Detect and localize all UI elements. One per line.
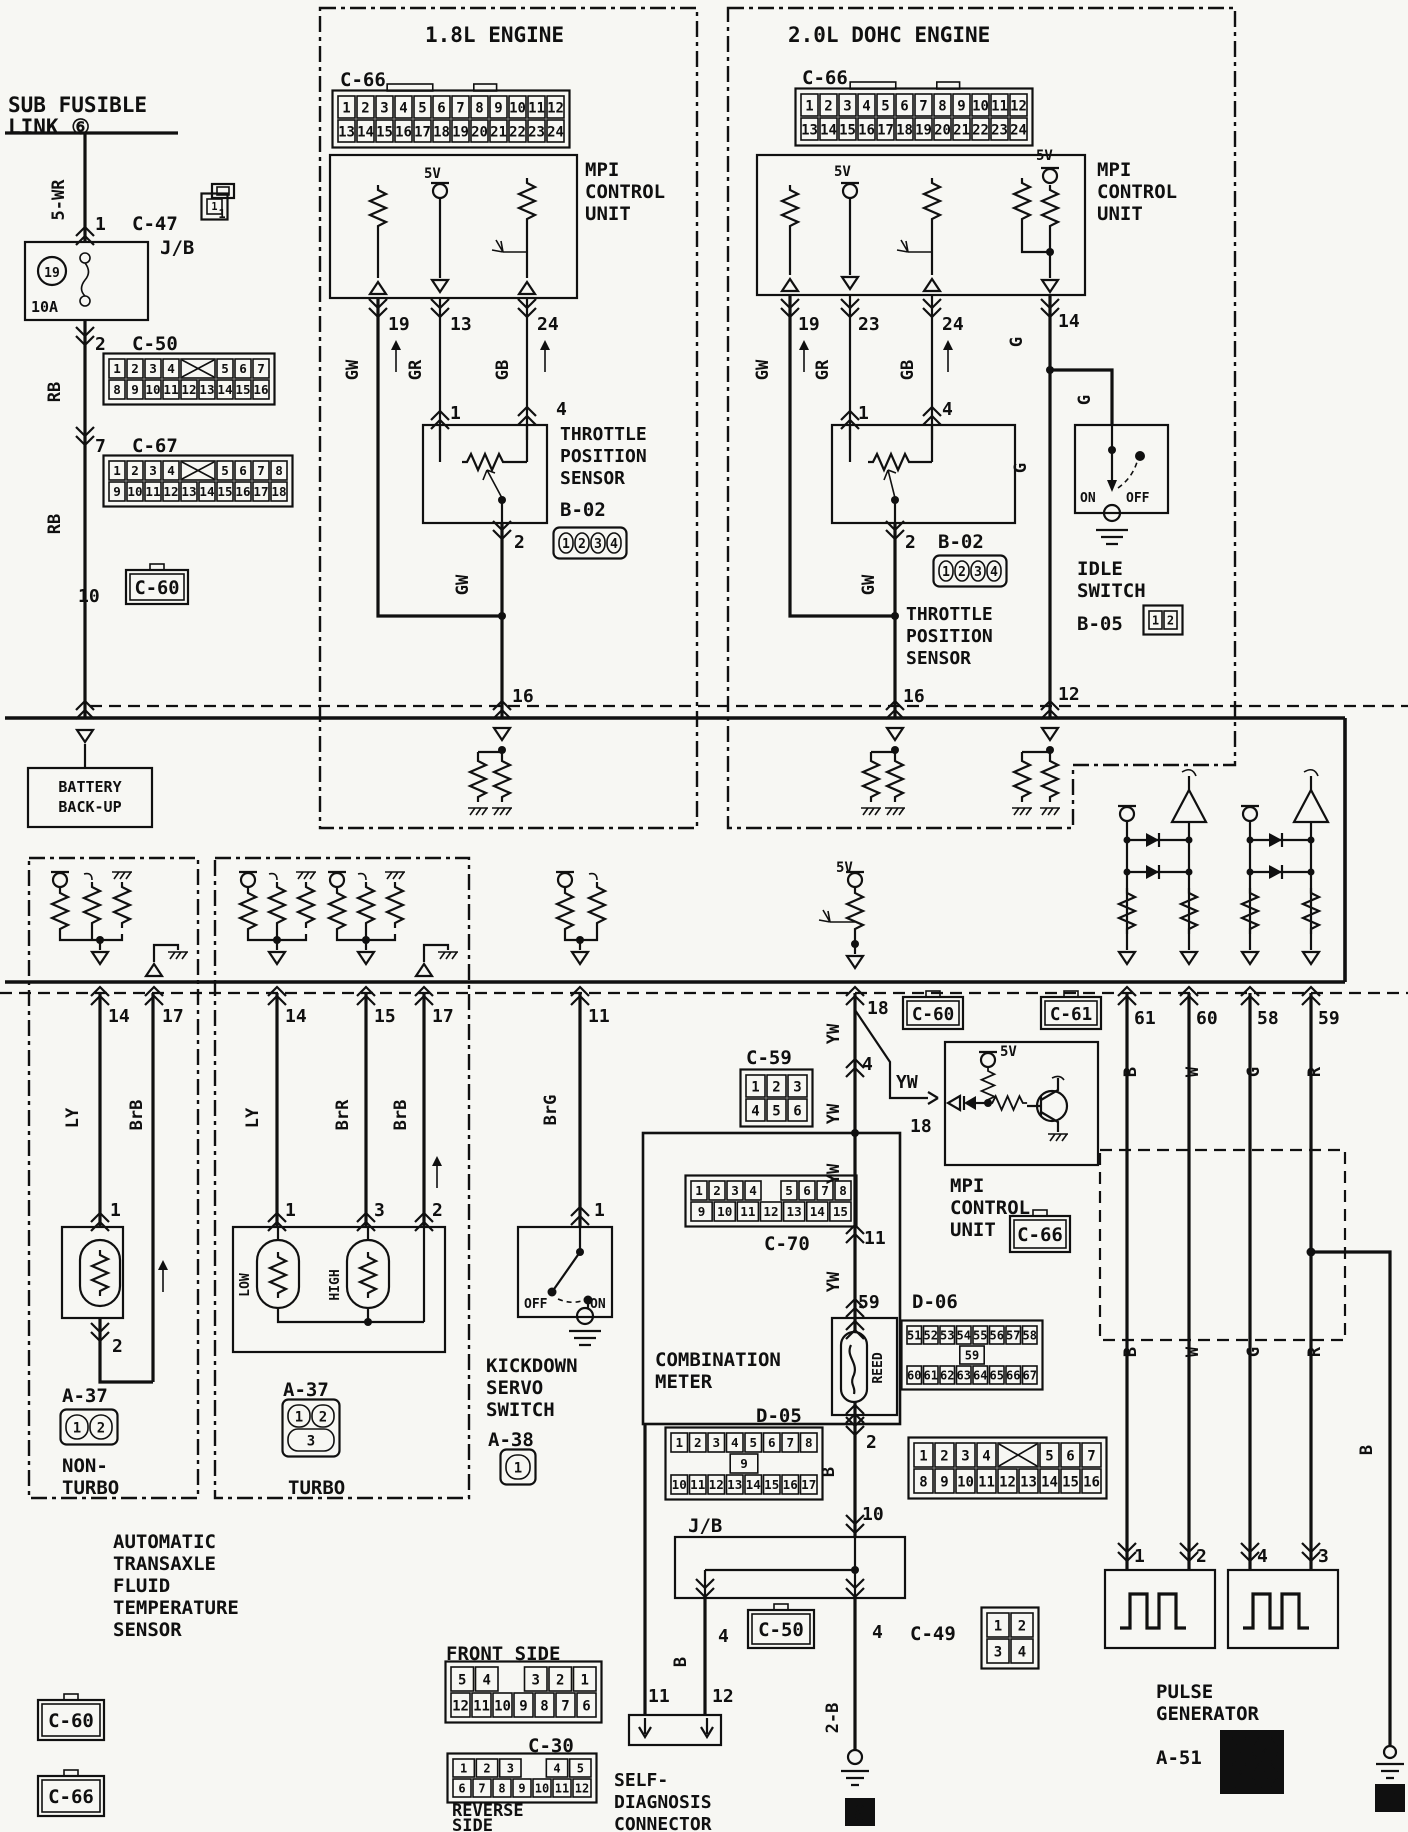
- pin-cell: 23: [991, 122, 1008, 138]
- tag-c-60: C-60: [903, 991, 963, 1029]
- pin-cell: 1: [295, 1409, 303, 1425]
- pin-cell: 9: [740, 1456, 748, 1471]
- pin-cell: 13: [727, 1477, 742, 1492]
- pin-cell: 6: [239, 463, 247, 478]
- diagram-label: DIAGNOSIS: [614, 1792, 712, 1813]
- pin-cell: 23: [528, 124, 545, 140]
- diagram-label: POSITION: [906, 626, 993, 647]
- pin-cell: 1: [695, 1183, 703, 1198]
- diagram-label: TEMPERATURE: [113, 1597, 239, 1619]
- diagram-label: OFF: [524, 1297, 548, 1312]
- pin-cell: 61: [924, 1368, 938, 1382]
- diagram-label: 4: [718, 1626, 729, 1647]
- pulse-generator-section: [1100, 993, 1405, 1812]
- diagram-label: IDLE: [1077, 558, 1123, 580]
- diagram-label: G: [1075, 395, 1095, 405]
- pin-cell: 1: [514, 1461, 522, 1477]
- pin-cell: 13: [181, 484, 196, 499]
- tag-label: C-60: [912, 1005, 954, 1025]
- pin-cell: 1: [675, 1435, 683, 1450]
- pin-cell: 7: [821, 1183, 829, 1198]
- pin-cell: 6: [239, 361, 247, 376]
- diagram-label: R: [1305, 1066, 1325, 1077]
- diagram-label: RB: [45, 382, 65, 402]
- pin-cell: 18: [896, 122, 913, 138]
- pin-cell: 21: [953, 122, 970, 138]
- diagram-label: C-50: [132, 333, 178, 355]
- pin-cell: 16: [1083, 1475, 1100, 1491]
- diagram-label: 16: [512, 686, 534, 707]
- pin-cell: 2: [578, 537, 586, 552]
- tag-c-60: C-60: [38, 1694, 104, 1740]
- diagram-label: BrB: [391, 1100, 411, 1131]
- pin-cell: 3: [961, 1449, 969, 1465]
- diagram-label: YW: [824, 1271, 844, 1292]
- pin-cell: 65: [990, 1368, 1004, 1382]
- diagram-label: GW: [753, 359, 773, 380]
- diagram-label: 59: [858, 1292, 880, 1313]
- bus-lines: [0, 706, 1408, 993]
- diagram-label: G: [1011, 463, 1031, 473]
- pin-cell: 16: [783, 1477, 798, 1492]
- pin-cell: 12: [163, 484, 178, 499]
- pin-cell: 53: [940, 1328, 954, 1342]
- pin-cell: 3: [149, 361, 157, 376]
- pin-cell: 13: [338, 124, 355, 140]
- pin-cell: 9: [131, 382, 139, 397]
- diagram-label: B: [1357, 1445, 1377, 1455]
- pin-cell: 3: [594, 537, 602, 552]
- pin-cell: 15: [839, 122, 856, 138]
- diagram-label: 2: [432, 1200, 443, 1221]
- bus2-crossings: [91, 987, 1320, 1005]
- diagram-label: 1: [1134, 1546, 1145, 1567]
- pin-cell: 22: [972, 122, 989, 138]
- diagram-label: LINK ⑥: [8, 115, 90, 139]
- diagram-label: UNIT: [950, 1219, 996, 1241]
- pin-cell: 16: [253, 382, 268, 397]
- atf-temp-sensors: [62, 993, 445, 1382]
- pin-cell: 9: [494, 100, 502, 116]
- pin-cell: 1: [751, 1079, 759, 1095]
- pin-cell: 3: [149, 463, 157, 478]
- connector-d05: 1234567891011121314151617: [666, 1428, 823, 1500]
- connector-c30-reverse: 123456789101112: [448, 1754, 597, 1803]
- pin-cell: 2: [694, 1435, 702, 1450]
- diagram-label: 24: [942, 314, 964, 335]
- pin-cell: 18: [271, 484, 286, 499]
- diagram-label: GR: [406, 359, 426, 380]
- diagram-label: GW: [453, 574, 473, 595]
- pin-cell: 3: [994, 1645, 1002, 1661]
- pin-cell: 14: [199, 484, 215, 499]
- pin-cell: 24: [1010, 122, 1027, 138]
- diagram-label: THROTTLE: [906, 604, 993, 625]
- diagram-label: 1: [110, 1200, 121, 1221]
- diagram-label: ON: [1080, 491, 1096, 506]
- pin-cell: 13: [1020, 1475, 1037, 1491]
- pin-cell: 24: [547, 124, 564, 140]
- pin-cell: 12: [1010, 98, 1027, 114]
- diagram-label: GW: [343, 359, 363, 380]
- tps-20l-box: [832, 425, 1015, 523]
- pin-cell: 5: [221, 361, 229, 376]
- jb-lower-box: [675, 1537, 905, 1598]
- diagram-label: R: [1305, 1346, 1325, 1357]
- pin-cell: 16: [858, 122, 875, 138]
- pin-cell: 7: [456, 100, 464, 116]
- pin-cell: 7: [478, 1781, 485, 1795]
- pin-cell: 4: [167, 361, 175, 376]
- diagram-label: 7: [95, 436, 106, 457]
- pin-cell: 4: [990, 565, 998, 580]
- wiring-diagram-page: C-60C-60C-61C-66C-50C-60C-66 12345678910…: [0, 0, 1408, 1832]
- connector-c30-front: 543211211109876: [446, 1662, 602, 1723]
- diagram-label: LY: [243, 1107, 263, 1128]
- diagram-label: C-70: [764, 1233, 810, 1255]
- pin-cell: 8: [805, 1435, 813, 1450]
- connector-grids: 1234567891011121314151612345678910111213…: [61, 82, 1285, 1803]
- pin-cell: 13: [199, 382, 214, 397]
- diagram-label: GW: [859, 574, 879, 595]
- diagram-label: NON-: [62, 1455, 108, 1477]
- wiring-diagram-canvas: C-60C-60C-61C-66C-50C-60C-66 12345678910…: [0, 0, 1408, 1832]
- diagram-label: 19: [388, 314, 410, 335]
- sub-fusible-link-label: SUB FUSIBLE: [8, 93, 147, 117]
- turbo-section-box: [215, 858, 469, 1498]
- pin-cell: 63: [957, 1368, 971, 1382]
- pin-cell: 16: [395, 124, 412, 140]
- diagram-label: 58: [1257, 1008, 1279, 1029]
- pin-cell: 10: [127, 484, 142, 499]
- diagram-label: HIGH: [328, 1269, 343, 1300]
- diagram-label: FRONT SIDE: [446, 1643, 560, 1665]
- pin-cell: 2: [940, 1449, 948, 1465]
- diagram-label: 4: [1257, 1546, 1268, 1567]
- diagram-label: 18: [910, 1116, 932, 1137]
- pin-cell: 58: [1023, 1328, 1037, 1342]
- diagram-label: 4: [862, 1054, 873, 1075]
- tag-c-61: C-61: [1041, 991, 1101, 1029]
- pin-cell: 9: [940, 1475, 948, 1491]
- pin-cell: 8: [919, 1475, 927, 1491]
- pin-cell: 2: [772, 1079, 780, 1095]
- connector-c67: 123456789101112131415161718: [104, 456, 293, 507]
- diagram-label: BrR: [333, 1099, 353, 1130]
- diagram-label: RB: [45, 514, 65, 534]
- pin-cell: 1: [581, 1673, 589, 1689]
- pin-cell: 20: [471, 124, 488, 140]
- diagram-label: REED: [871, 1352, 886, 1383]
- diagram-label: YW: [824, 1103, 844, 1124]
- pin-cell: 1: [342, 100, 350, 116]
- pin-cell: 4: [982, 1449, 990, 1465]
- diagram-label: 1: [285, 1200, 296, 1221]
- pin-cell: 14: [746, 1477, 762, 1492]
- diagram-label: 2: [866, 1432, 877, 1453]
- diagram-label: 19: [44, 266, 60, 281]
- pin-cell: 16: [235, 484, 250, 499]
- diagram-label: SWITCH: [1077, 580, 1146, 602]
- diagram-label: GB: [493, 360, 513, 380]
- pin-cell: 15: [1062, 1475, 1079, 1491]
- connector-c66-20l: 123456789101112131415161718192021222324: [796, 82, 1033, 146]
- diagram-label: D-05: [756, 1405, 802, 1427]
- pin-cell: 8: [498, 1781, 505, 1795]
- pin-cell: 3: [843, 98, 851, 114]
- pin-cell: 2: [319, 1409, 327, 1425]
- pin-cell: 1: [919, 1449, 927, 1465]
- pin-cell: 2: [97, 1421, 105, 1437]
- pin-cell: 21: [490, 124, 507, 140]
- pin-cell: 17: [414, 124, 431, 140]
- diagram-label: A-37: [62, 1385, 108, 1407]
- pin-cell: 19: [452, 124, 469, 140]
- diagram-label: 1: [218, 207, 225, 221]
- diagram-label: METER: [655, 1371, 713, 1393]
- diagram-label: SELF-: [614, 1770, 668, 1791]
- diagram-label: 1: [594, 1200, 605, 1221]
- diagram-label: B: [1121, 1347, 1141, 1357]
- pin-cell: 7: [919, 98, 927, 114]
- pin-cell: 10: [972, 98, 989, 114]
- diagram-label: MPI: [585, 159, 619, 181]
- diagram-label: TRANSAXLE: [113, 1553, 216, 1575]
- diagram-label: 5V: [834, 164, 851, 180]
- pin-cell: 66: [1006, 1368, 1020, 1382]
- diagram-label: A-38: [488, 1429, 534, 1451]
- pin-cell: 8: [938, 98, 946, 114]
- diagram-label: 10A: [31, 298, 58, 316]
- diagram-label: 7: [1384, 1787, 1396, 1811]
- diagram-label: B: [671, 1657, 691, 1667]
- pin-cell: 4: [483, 1673, 491, 1689]
- pin-cell: 6: [458, 1781, 465, 1795]
- diagram-label: W: [1183, 1066, 1203, 1077]
- pin-cell: 1: [113, 463, 121, 478]
- pin-cell: 9: [518, 1781, 525, 1795]
- diode-network: [1118, 770, 1328, 964]
- atf-sensor-nonturbo-element: [80, 1240, 120, 1306]
- pin-cell: 8: [475, 100, 483, 116]
- pin-cell: 6: [803, 1183, 811, 1198]
- pin-cell: 2: [1261, 1743, 1269, 1759]
- pin-cell: 9: [519, 1699, 527, 1715]
- pin-cell: 5: [749, 1435, 757, 1450]
- pin-cell: 6: [437, 100, 445, 116]
- diagram-label: LY: [63, 1107, 83, 1128]
- pin-cell: 2: [1018, 1619, 1026, 1635]
- diagram-label: 2: [514, 532, 525, 553]
- diagram-label: 15: [374, 1006, 396, 1027]
- diagram-label: GR: [813, 359, 833, 380]
- connector-c59: 123456: [741, 1070, 813, 1127]
- connector-c66-18l: 123456789101112131415161718192021222324: [333, 84, 570, 148]
- diagram-label: CONTROL: [585, 181, 665, 203]
- pin-cell: 52: [924, 1328, 938, 1342]
- connector-b02-20l: 1234: [934, 556, 1007, 587]
- diagram-label: C-47: [132, 213, 178, 235]
- mpi-unit-18l-box: [330, 155, 577, 298]
- pin-cell: 4: [751, 1103, 759, 1119]
- pin-cell: 5: [772, 1103, 780, 1119]
- pin-cell: 19: [915, 122, 932, 138]
- diagram-label: CONTROL: [950, 1197, 1030, 1219]
- pin-cell: 8: [113, 382, 121, 397]
- diagram-label: 16: [903, 686, 925, 707]
- diagram-label: 2: [905, 532, 916, 553]
- diagram-label: C-66: [802, 67, 848, 89]
- pin-cell: 2: [131, 463, 139, 478]
- diagram-label: C-66: [340, 69, 386, 91]
- connector-a51: 1234: [1220, 1730, 1284, 1794]
- pin-cell: 3: [731, 1183, 739, 1198]
- diagram-label: 18: [867, 998, 889, 1019]
- diagram-label: 4: [942, 399, 953, 420]
- diagram-label: PULSE: [1156, 1681, 1213, 1703]
- pin-cell: 2: [131, 361, 139, 376]
- diagram-label: SENSOR: [560, 468, 625, 489]
- pin-cell: 3: [974, 565, 982, 580]
- connector-c50: 12345678910111213141516: [104, 354, 275, 405]
- pin-cell: 2: [958, 565, 966, 580]
- diagram-label: 10: [78, 586, 100, 607]
- diagram-label: A-51: [1156, 1747, 1202, 1769]
- connector-c49: 1234: [982, 1608, 1039, 1669]
- pin-cell: 10: [494, 1699, 511, 1715]
- pin-cell: 2: [556, 1673, 564, 1689]
- pin-cell: 11: [555, 1781, 569, 1795]
- pin-cell: 2: [713, 1183, 721, 1198]
- diagram-label: 14: [1058, 311, 1080, 332]
- pin-cell: 10: [957, 1475, 974, 1491]
- pin-cell: 1: [460, 1761, 467, 1775]
- pin-cell: 3: [507, 1761, 514, 1775]
- diagram-label: AUTOMATIC: [113, 1531, 216, 1553]
- diagram-label: 5V: [1036, 148, 1053, 164]
- pin-cell: 1: [113, 361, 121, 376]
- pulse-gen-dashed-box: [1100, 1150, 1345, 1340]
- pin-cell: 1: [994, 1619, 1002, 1635]
- pin-cell: 60: [907, 1368, 921, 1382]
- pin-cell: 11: [473, 1699, 490, 1715]
- diagram-label: YW: [824, 1163, 844, 1184]
- diagram-label: SWITCH: [486, 1399, 555, 1421]
- pin-cell: 2: [1167, 613, 1174, 627]
- pin-cell: 14: [217, 382, 233, 397]
- diagram-label: 17: [162, 1006, 184, 1027]
- pin-cell: 10: [535, 1781, 549, 1795]
- pin-cell: 12: [575, 1781, 589, 1795]
- pin-cell: 3: [380, 100, 388, 116]
- diagram-label: B: [1121, 1067, 1141, 1077]
- diagram-label: 12: [712, 1686, 734, 1707]
- diagram-label: J/B: [160, 237, 194, 259]
- diagram-label: 60: [1196, 1008, 1218, 1029]
- pin-cell: 62: [940, 1368, 954, 1382]
- engine-20-title: 2.0L DOHC ENGINE: [788, 23, 990, 47]
- pin-cell: 51: [907, 1328, 921, 1342]
- pin-cell: 11: [163, 382, 178, 397]
- diagram-label: KICKDOWN: [486, 1355, 578, 1377]
- diagram-label: C-30: [528, 1735, 574, 1757]
- connector-b02-18l: 1234: [554, 528, 627, 559]
- pin-cell: 56: [990, 1328, 1004, 1342]
- pin-cell: 15: [217, 484, 232, 499]
- pin-cell: 1: [942, 565, 950, 580]
- diagram-label: TURBO: [62, 1477, 119, 1499]
- diagram-label: 61: [1134, 1008, 1156, 1029]
- pin-cell: 12: [999, 1475, 1016, 1491]
- pin-cell: 4: [553, 1761, 560, 1775]
- pin-cell: 13: [801, 122, 818, 138]
- pin-cell: 14: [1041, 1475, 1058, 1491]
- pin-cell: 12: [547, 100, 564, 116]
- diagram-label: 1: [858, 403, 869, 424]
- pin-cell: 4: [1018, 1645, 1026, 1661]
- diagram-label: 59: [1318, 1008, 1340, 1029]
- pin-cell: 8: [275, 463, 283, 478]
- diagram-label: 19: [798, 314, 820, 335]
- diagram-label: 5V: [1000, 1044, 1017, 1060]
- diagram-label: A-37: [283, 1379, 329, 1401]
- pin-cell: 4: [167, 463, 175, 478]
- diagram-label: SENSOR: [113, 1619, 182, 1641]
- pin-cell: 54: [957, 1328, 971, 1342]
- diagram-label: OFF: [1126, 491, 1150, 506]
- diagram-label: 2-B: [823, 1703, 843, 1734]
- pin-cell: 4: [749, 1183, 757, 1198]
- diagram-label: G: [1007, 337, 1027, 347]
- pin-cell: 10: [672, 1477, 687, 1492]
- diagram-label: BrB: [127, 1100, 147, 1131]
- pin-cell: 7: [786, 1435, 794, 1450]
- pin-cell: 1: [805, 98, 813, 114]
- pin-cell: 5: [221, 463, 229, 478]
- diagram-label: 17: [432, 1006, 454, 1027]
- diagram-label: GB: [898, 360, 918, 380]
- diagram-label: 11: [588, 1006, 610, 1027]
- pin-cell: 9: [698, 1204, 706, 1219]
- diagram-label: J/B: [688, 1515, 722, 1537]
- tag-c-50: C-50: [748, 1604, 814, 1648]
- diagram-label: B-05: [1077, 613, 1123, 635]
- diagram-label: 11: [648, 1686, 670, 1707]
- diagram-label: 3: [1318, 1546, 1329, 1567]
- diagram-label: 24: [537, 314, 559, 335]
- pin-cell: 6: [793, 1103, 801, 1119]
- pin-cell: 11: [740, 1204, 755, 1219]
- tag-label: C-66: [1017, 1224, 1063, 1246]
- pin-cell: 3: [532, 1673, 540, 1689]
- pin-cell: 2: [483, 1761, 490, 1775]
- pin-cell: 12: [181, 382, 196, 397]
- pin-cell: 4: [862, 98, 870, 114]
- pin-cell: 5: [881, 98, 889, 114]
- pin-cell: 14: [357, 124, 374, 140]
- diagram-label: 2: [1196, 1546, 1207, 1567]
- pin-cell: 3: [307, 1433, 315, 1449]
- pin-cell: 4: [731, 1435, 739, 1450]
- pin-cell: 5: [785, 1183, 793, 1198]
- kickdown-servo: [518, 993, 612, 1345]
- diagram-label: MPI: [1097, 159, 1131, 181]
- tag-label: C-60: [48, 1710, 94, 1732]
- pin-cell: 3: [712, 1435, 720, 1450]
- diagram-label: 5-WR: [49, 179, 69, 221]
- diagram-label: 14: [108, 1006, 130, 1027]
- tag-label: C-61: [1050, 1005, 1092, 1025]
